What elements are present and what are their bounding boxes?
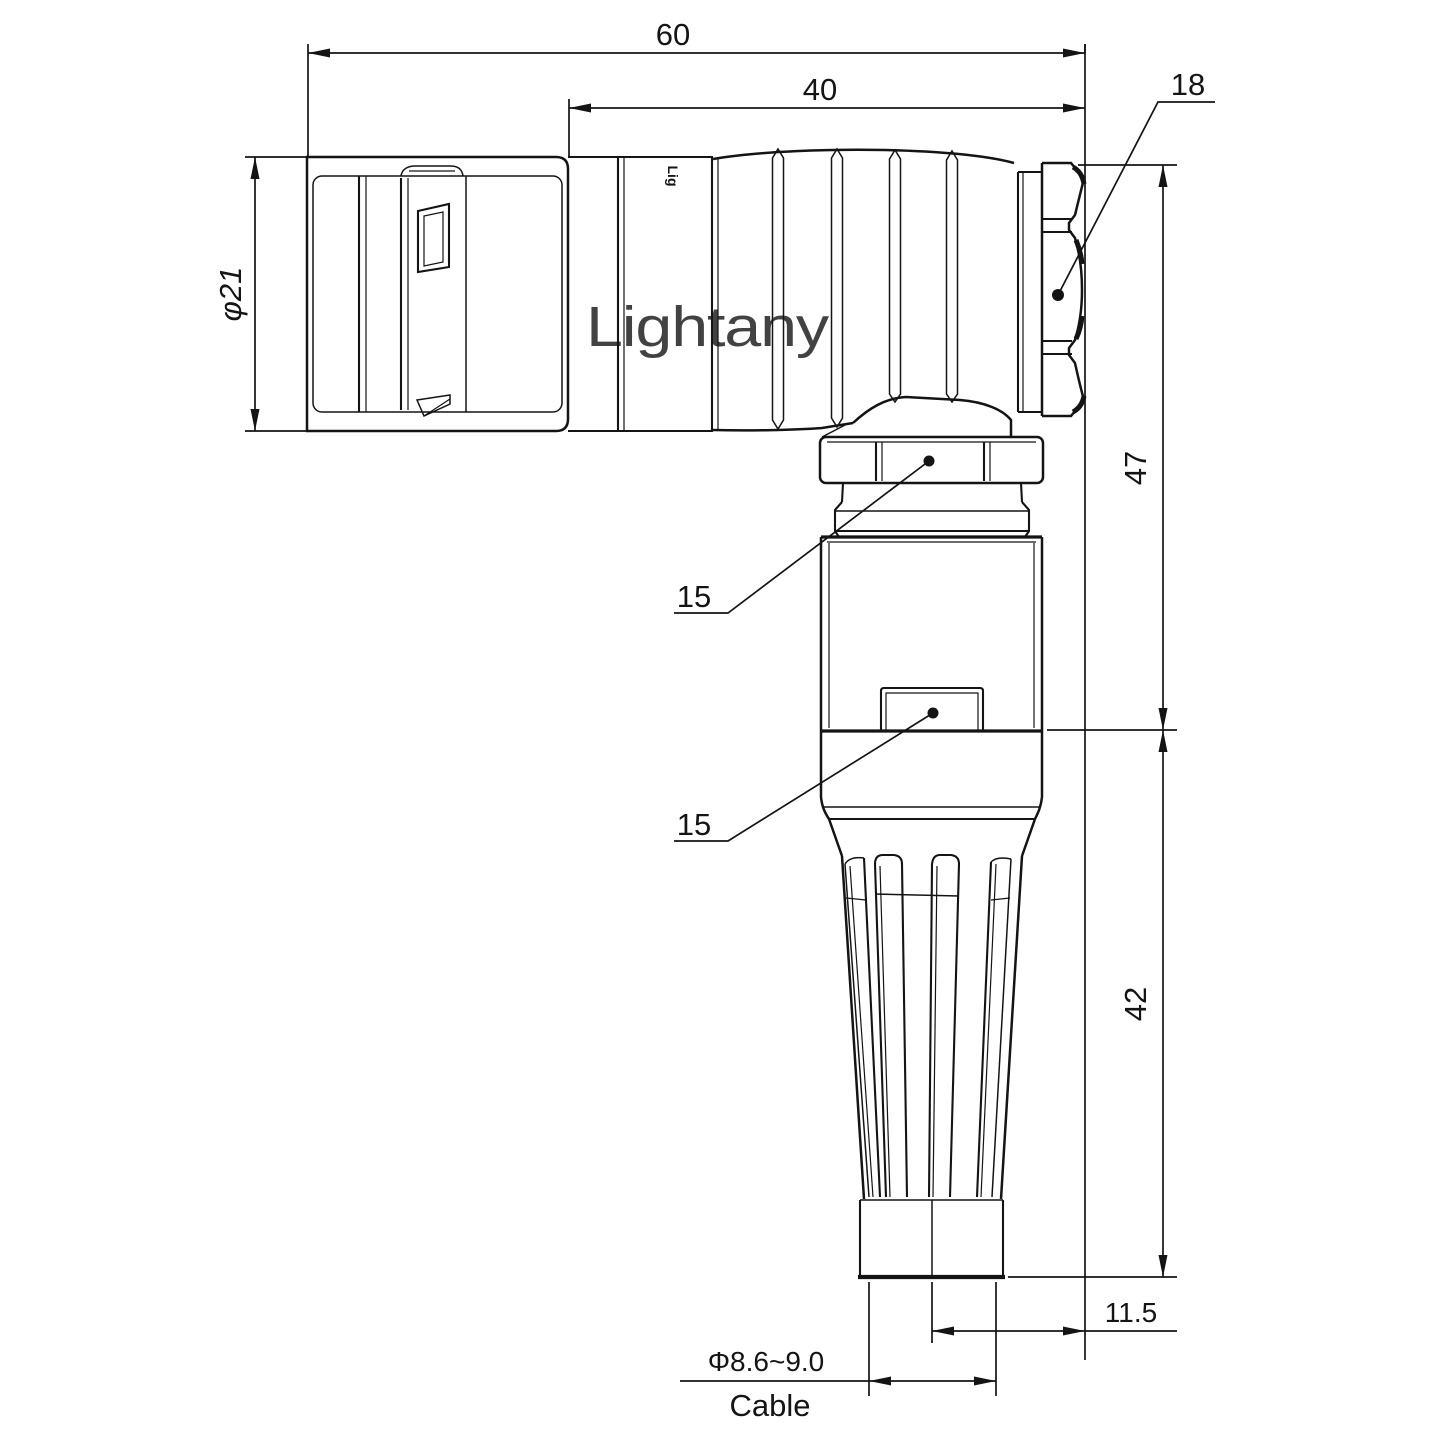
elbow-hump (853, 397, 1011, 436)
knurled-sleeve (713, 149, 1014, 437)
knurl-strip (773, 149, 784, 429)
dim-18-label: 18 (1171, 67, 1205, 102)
callout-18: 18 (1052, 67, 1215, 301)
dimension-40: 40 (569, 72, 1085, 156)
cable-caption: Cable (730, 1388, 811, 1423)
dimension-11-5: 11.5 (932, 1282, 1177, 1343)
back-washer (1018, 172, 1042, 412)
front-shell (307, 157, 568, 431)
dim-47-label: 47 (1118, 451, 1153, 485)
dim-cable-diameter-label: Φ8.6~9.0 (708, 1346, 825, 1377)
dim-40-label: 40 (803, 72, 837, 107)
knurl-strip (832, 149, 843, 427)
strain-relief (842, 855, 1022, 1199)
dim-15-lower-label: 15 (677, 807, 711, 842)
dimension-42: 42 (1008, 730, 1177, 1277)
dim-11-5-label: 11.5 (1105, 1297, 1157, 1328)
callout-15-lower: 15 (674, 708, 939, 843)
latch-wedge (417, 395, 450, 416)
knurl-strip (947, 151, 958, 402)
connector-drawing: Lightany Lig (0, 0, 1440, 1440)
cable-sleeve (858, 1200, 1005, 1277)
drawing-canvas: Lightany Lig (0, 0, 1440, 1440)
watermark-text: Lightany (586, 295, 830, 359)
hex-nut (1042, 163, 1084, 416)
dim-42-label: 42 (1118, 987, 1153, 1021)
dimension-dia21: φ21 (213, 157, 307, 431)
body-logo-text: Lig (665, 166, 681, 187)
knurl-strip (890, 150, 901, 402)
dim-60-label: 60 (656, 17, 690, 52)
lower-housing (821, 537, 1042, 856)
dim-dia21-label: φ21 (213, 267, 248, 322)
dim-15-upper-label: 15 (677, 579, 711, 614)
dimension-cable: Φ8.6~9.0 Cable (680, 1282, 996, 1423)
mid-collar: Lig (568, 157, 718, 431)
dimension-60: 60 (308, 17, 1085, 156)
callout-15-upper: 15 (674, 456, 935, 615)
dimension-47: 47 (1078, 165, 1177, 730)
